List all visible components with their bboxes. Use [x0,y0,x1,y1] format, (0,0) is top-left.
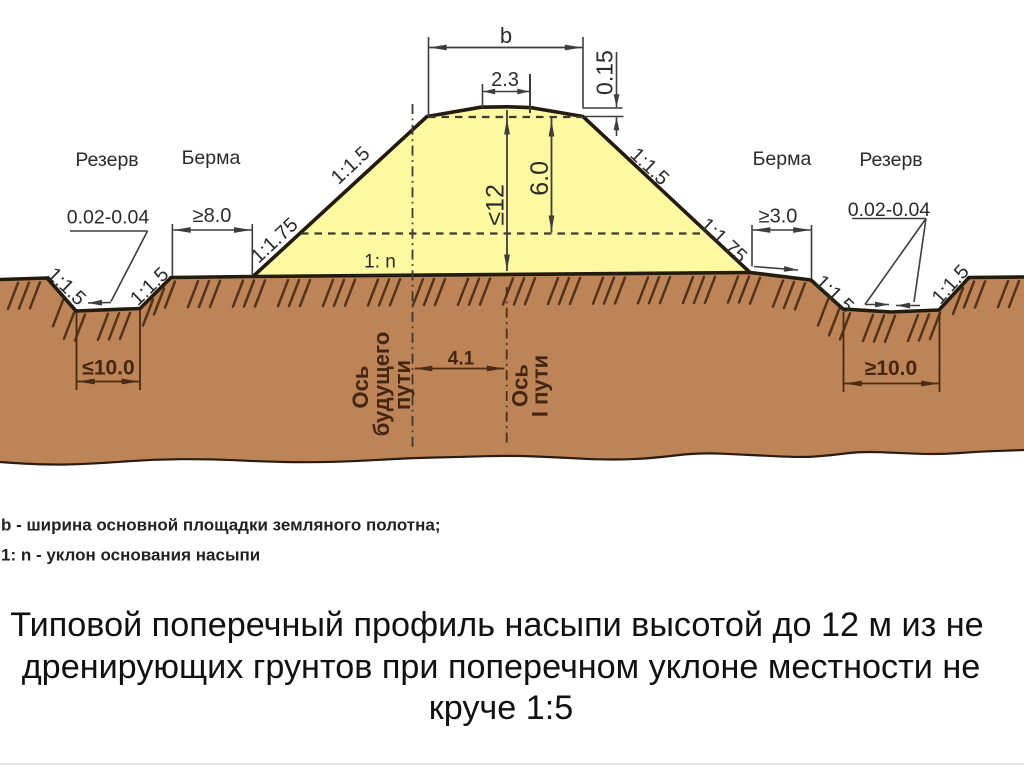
svg-text:≥3.0: ≥3.0 [759,206,798,228]
svg-text:2.3: 2.3 [491,69,519,91]
svg-text:≥8.0: ≥8.0 [193,205,232,227]
svg-text:Берма: Берма [753,148,812,170]
svg-text:b - ширина основной площадки з: b - ширина основной площадки земляного п… [1,516,441,535]
svg-text:1: n - уклон основания насыпи: 1: n - уклон основания насыпи [1,546,260,565]
svg-text:пути: пути [390,360,415,410]
svg-text:0.02-0.04: 0.02-0.04 [67,206,150,228]
svg-text:4.1: 4.1 [448,349,475,370]
svg-text:Типовой поперечный профиль нас: Типовой поперечный профиль насыпи высото… [10,606,983,644]
svg-text:Резерв: Резерв [75,149,138,171]
svg-text:дренирующих грунтов при попере: дренирующих грунтов при поперечном уклон… [22,648,981,686]
svg-text:1: n: 1: n [364,252,396,273]
svg-text:I пути: I пути [528,355,553,417]
svg-text:0.15: 0.15 [592,50,618,95]
svg-text:≥10.0: ≥10.0 [865,357,917,380]
svg-text:Резерв: Резерв [859,149,922,171]
svg-text:≤12: ≤12 [481,184,509,226]
svg-text:круче 1:5: круче 1:5 [429,689,574,727]
svg-text:Берма: Берма [182,147,241,169]
svg-text:≤10.0: ≤10.0 [82,356,134,379]
svg-text:b: b [500,23,512,48]
svg-text:6.0: 6.0 [526,161,554,196]
svg-text:0.02-0.04: 0.02-0.04 [848,199,931,221]
